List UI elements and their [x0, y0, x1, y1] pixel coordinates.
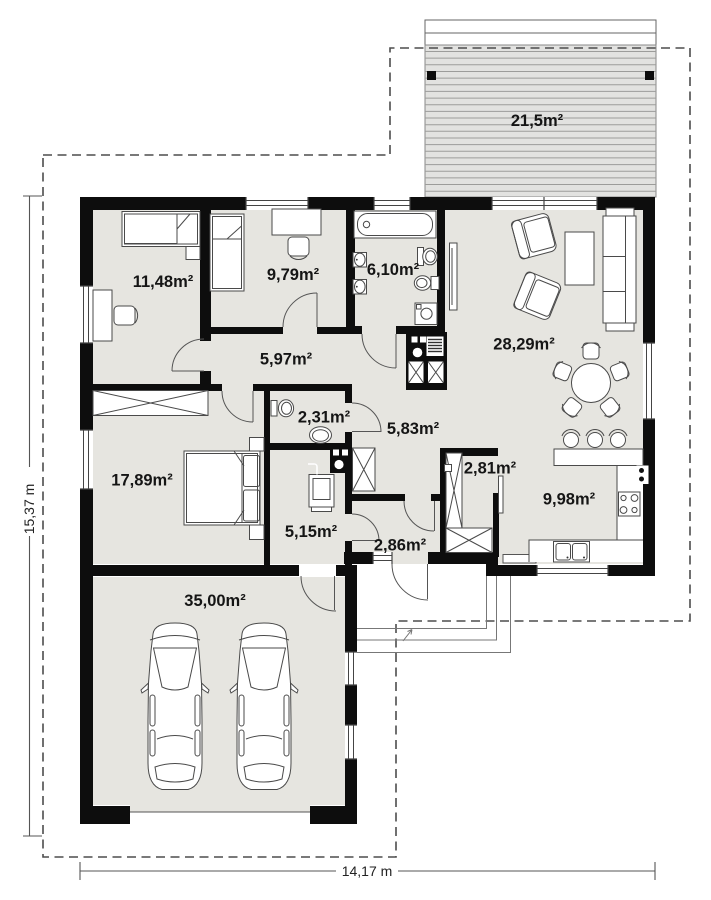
svg-text:28,29m²: 28,29m²: [493, 336, 555, 354]
svg-text:11,48m²: 11,48m²: [133, 273, 194, 291]
svg-text:35,00m²: 35,00m²: [184, 592, 246, 610]
svg-text:21,5m²: 21,5m²: [511, 112, 564, 130]
svg-text:2,31m²: 2,31m²: [298, 409, 351, 427]
svg-text:15,37 m: 15,37 m: [21, 484, 37, 535]
svg-text:5,15m²: 5,15m²: [285, 523, 338, 541]
svg-text:9,98m²: 9,98m²: [543, 491, 596, 509]
svg-text:6,10m²: 6,10m²: [367, 261, 420, 279]
svg-text:2,86m²: 2,86m²: [374, 537, 427, 555]
svg-text:9,79m²: 9,79m²: [267, 266, 320, 284]
svg-text:5,97m²: 5,97m²: [260, 351, 313, 369]
svg-text:5,83m²: 5,83m²: [387, 420, 440, 438]
svg-text:2,81m²: 2,81m²: [464, 460, 517, 478]
svg-text:17,89m²: 17,89m²: [111, 472, 173, 490]
svg-text:14,17 m: 14,17 m: [342, 863, 393, 879]
